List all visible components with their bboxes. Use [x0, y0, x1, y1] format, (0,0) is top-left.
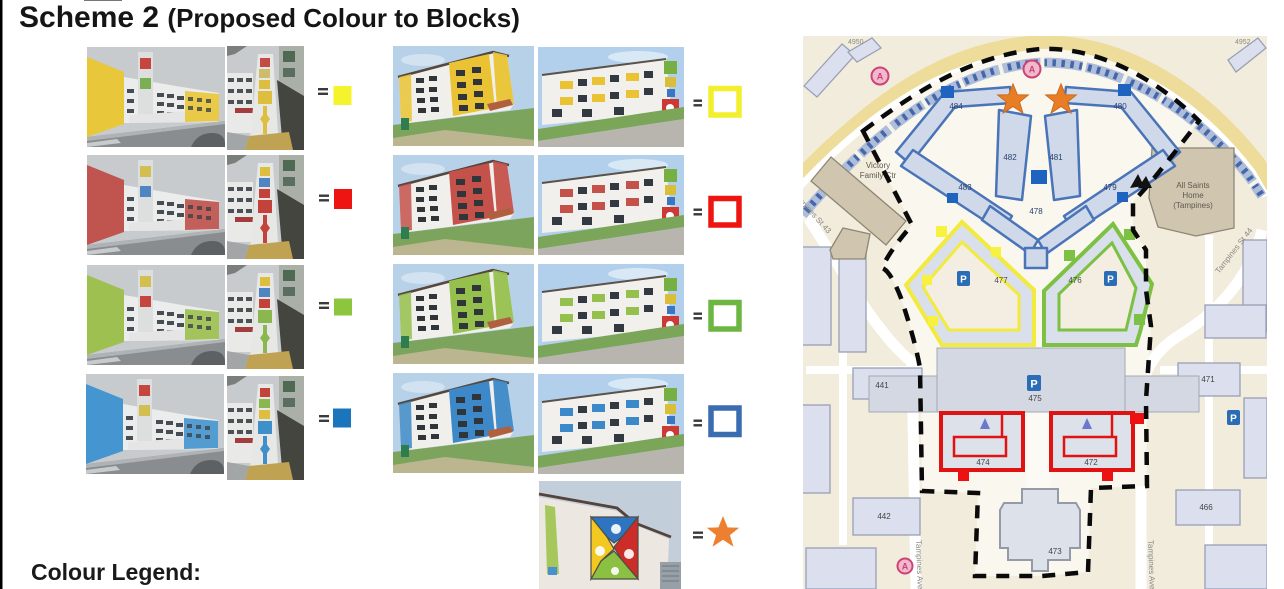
svg-text:480: 480 [1113, 102, 1127, 111]
svg-text:479: 479 [1103, 183, 1117, 192]
svg-text:A: A [902, 562, 909, 572]
svg-text:P: P [1030, 379, 1037, 391]
svg-text:474: 474 [976, 458, 990, 467]
svg-text:Victory: Victory [866, 161, 890, 170]
svg-text:478: 478 [1029, 207, 1043, 216]
svg-text:Tampines Ave 5: Tampines Ave 5 [1146, 540, 1157, 589]
svg-text:A: A [877, 72, 884, 82]
svg-text:471: 471 [1201, 375, 1215, 384]
svg-text:477: 477 [994, 276, 1008, 285]
svg-text:483: 483 [958, 183, 972, 192]
svg-text:442: 442 [877, 512, 891, 521]
svg-text:P: P [960, 275, 967, 286]
svg-text:476: 476 [1068, 276, 1082, 285]
svg-text:All Saints: All Saints [1176, 181, 1209, 190]
svg-text:A: A [1029, 65, 1036, 75]
svg-text:P: P [1107, 275, 1114, 286]
svg-text:441: 441 [875, 381, 889, 390]
svg-text:481: 481 [1049, 153, 1063, 162]
svg-text:(Tampines): (Tampines) [1173, 201, 1213, 210]
svg-text:475: 475 [1028, 394, 1042, 403]
svg-text:Family Ctr: Family Ctr [860, 171, 897, 180]
svg-text:Home: Home [1182, 191, 1204, 200]
svg-text:466: 466 [1199, 503, 1213, 512]
svg-text:472: 472 [1084, 458, 1098, 467]
svg-text:473: 473 [1048, 547, 1062, 556]
svg-text:482: 482 [1003, 153, 1017, 162]
svg-text:484: 484 [949, 102, 963, 111]
svg-text:Tampines Ave 5: Tampines Ave 5 [914, 540, 925, 589]
svg-text:P: P [1230, 414, 1237, 425]
svg-text:4952: 4952 [1235, 39, 1251, 46]
svg-text:4950: 4950 [848, 39, 864, 46]
